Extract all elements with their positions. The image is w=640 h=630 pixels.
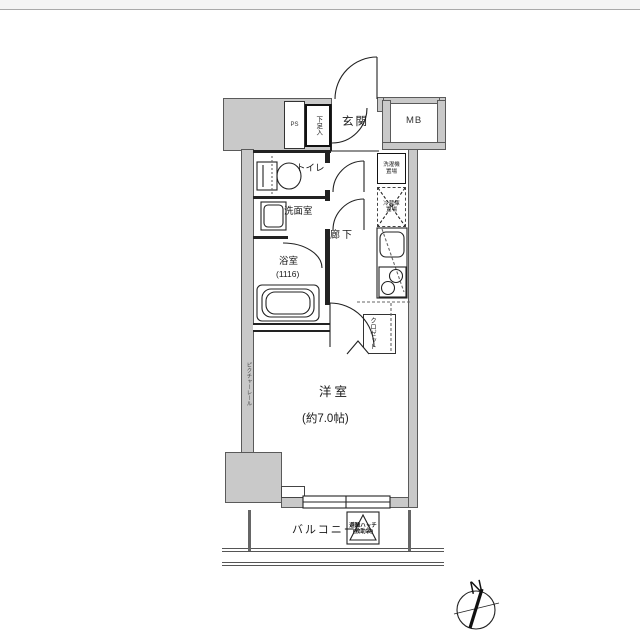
compass: N — [454, 576, 499, 629]
balcony-edge-line-2 — [222, 565, 444, 566]
balcony-post-left — [248, 510, 251, 551]
kitchen-sink — [380, 232, 404, 257]
balcony-post-right — [408, 510, 411, 551]
stove-burner-1 — [390, 270, 403, 283]
western-room-label: 洋室 — [319, 385, 350, 399]
entrance-door-arc — [335, 57, 377, 99]
balcony-rail-line-2 — [222, 551, 444, 552]
toilet-door-arc — [333, 161, 364, 192]
mb-label: MB — [406, 116, 422, 127]
washroom-door-arc — [333, 199, 364, 230]
balcony-edge-line-1 — [222, 562, 444, 563]
compass-n-label: N — [468, 576, 485, 598]
bathroom-label: 浴室 — [279, 257, 298, 268]
genkan-label: 玄関 — [342, 116, 369, 129]
balcony-label: バルコニー — [292, 524, 357, 537]
washroom-label: 洗面室 — [284, 207, 313, 218]
toilet-tank — [257, 162, 277, 190]
picture-rail-label: ピクチャーレール — [245, 362, 251, 406]
washbasin-inner — [264, 205, 283, 227]
stove-burner-2 — [382, 282, 395, 295]
western-room-size-label: (約7.0帖) — [302, 413, 349, 426]
bathtub-inner — [266, 292, 310, 314]
hallway-label: 廊下 — [330, 230, 354, 242]
room-door-arc — [330, 303, 374, 347]
closet-bifold-door — [347, 341, 369, 354]
floorplan-canvas: PS 下足入 洗濯機 置場 冷蔵庫 置場 クロゼット — [0, 0, 640, 630]
bathroom-size-label: (1116) — [276, 270, 299, 280]
toilet-label: トイレ — [296, 164, 325, 175]
